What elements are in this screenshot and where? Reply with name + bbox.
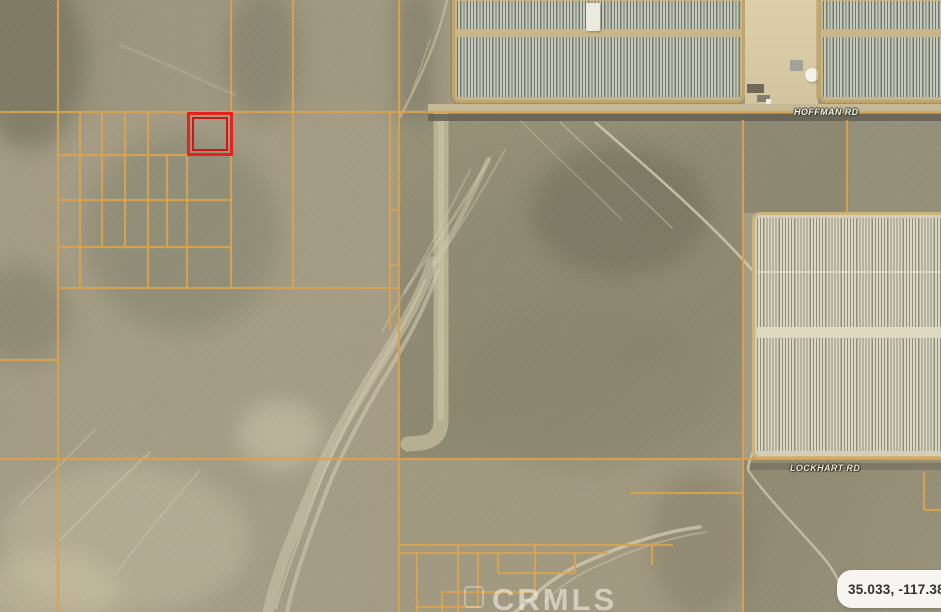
lockhart-road-label: LOCKHART RD bbox=[790, 463, 860, 473]
crmls-logo-icon bbox=[464, 586, 484, 608]
map-canvas[interactable]: HOFFMAN RD LOCKHART RD CRMLS 35.033, -11… bbox=[0, 0, 941, 612]
subject-parcel-marker[interactable] bbox=[187, 112, 233, 156]
coordinates-badge: 35.033, -117.383 bbox=[837, 570, 941, 608]
parcel-grid bbox=[0, 0, 941, 612]
coordinates-text: 35.033, -117.383 bbox=[848, 582, 941, 597]
crmls-watermark: CRMLS bbox=[492, 582, 617, 612]
hoffman-road-label: HOFFMAN RD bbox=[794, 107, 859, 117]
